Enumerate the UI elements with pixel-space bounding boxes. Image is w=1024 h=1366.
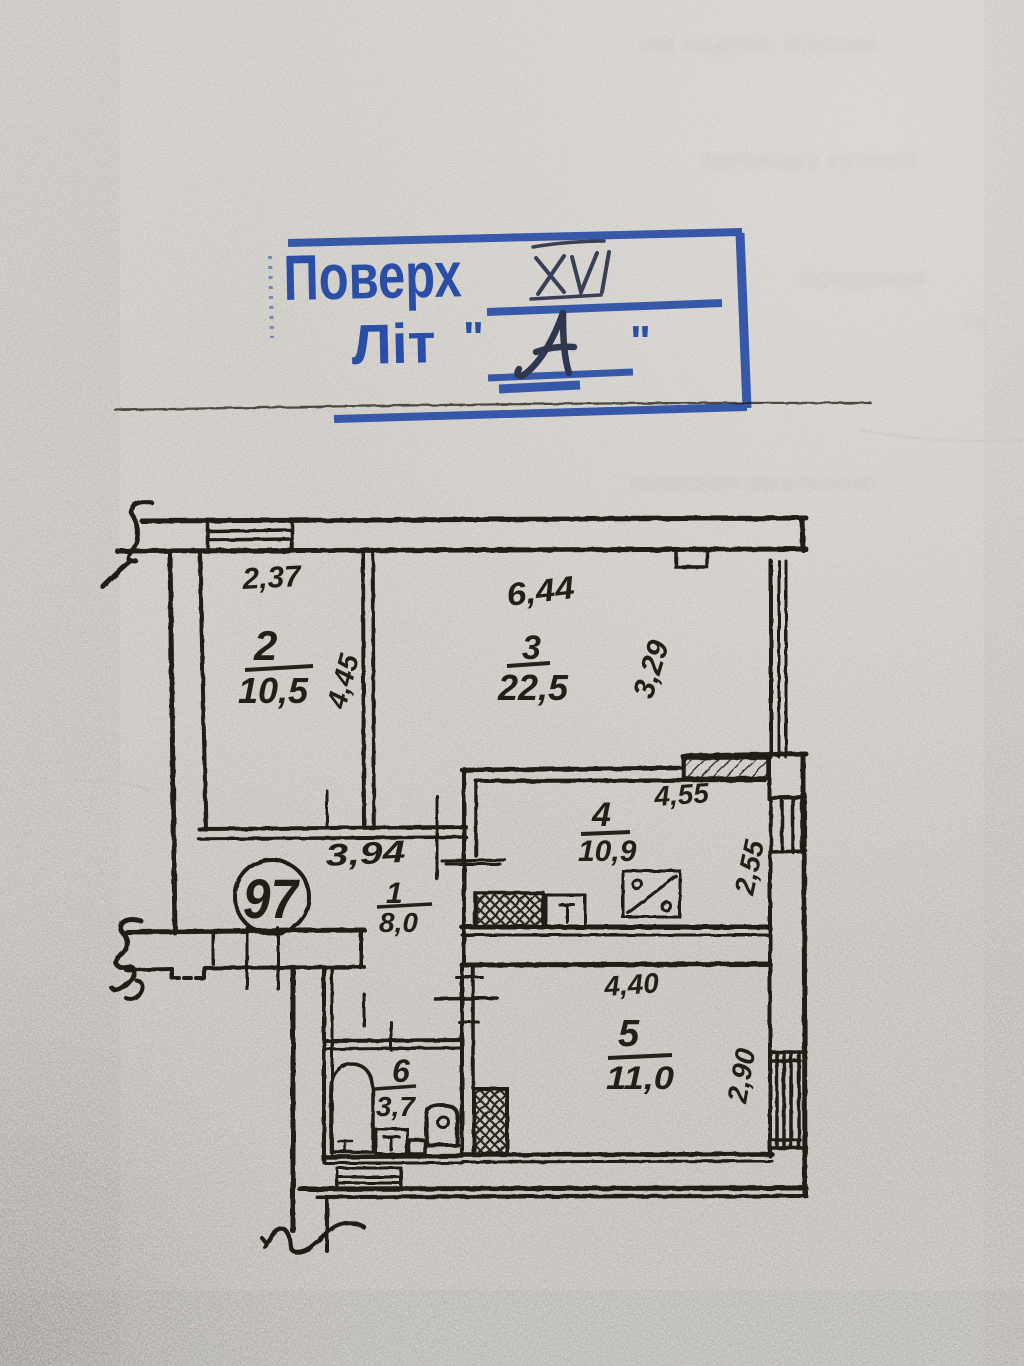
svg-text:4,40: 4,40	[602, 967, 660, 1002]
svg-text:97: 97	[243, 867, 301, 930]
svg-text:4: 4	[591, 796, 611, 834]
svg-text:3: 3	[522, 629, 541, 667]
svg-text:3,94: 3,94	[325, 834, 407, 873]
svg-text:5: 5	[618, 1013, 640, 1055]
svg-text:": "	[630, 317, 651, 366]
svg-text:договору купівлі: договору купівлі	[700, 144, 917, 174]
svg-text:Літ: Літ	[351, 311, 436, 376]
svg-text:продавця: продавця	[800, 262, 925, 292]
svg-text:10,5: 10,5	[238, 670, 309, 711]
svg-text:2,37: 2,37	[241, 560, 303, 596]
svg-text:им надпис відпові: им надпис відпові	[640, 28, 877, 58]
svg-text:8,0: 8,0	[379, 907, 418, 938]
svg-text:2: 2	[253, 622, 277, 669]
svg-text:3,7: 3,7	[376, 1091, 416, 1122]
svg-text:квартири загальною: квартири загальною	[630, 469, 875, 496]
svg-text:Поверх: Поверх	[283, 238, 463, 314]
svg-text:": "	[463, 313, 484, 362]
svg-text:11,0: 11,0	[606, 1060, 674, 1096]
svg-text:4,55: 4,55	[652, 777, 710, 812]
svg-text:6: 6	[392, 1053, 410, 1089]
svg-text:та: та	[960, 309, 986, 336]
svg-text:22,5: 22,5	[497, 667, 569, 708]
svg-text:10,9: 10,9	[578, 835, 637, 868]
